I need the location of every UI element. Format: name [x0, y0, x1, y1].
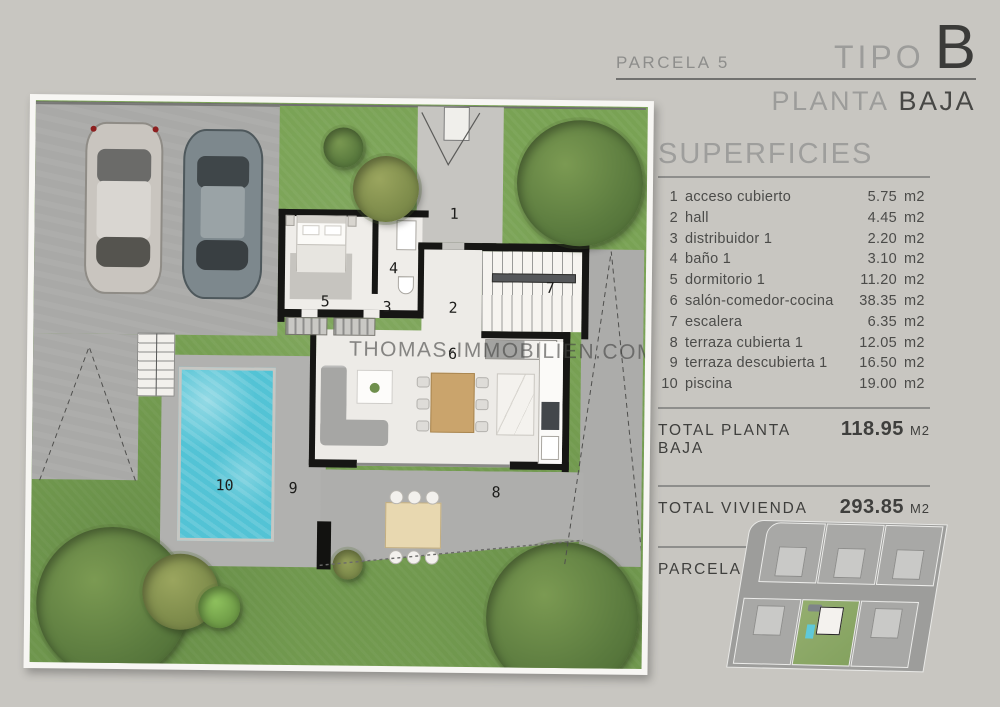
site-parcel-highlighted: [793, 600, 859, 665]
surfaces-panel: SUPERFICIES 1 acceso cubierto 5.75 m2 2 …: [658, 138, 930, 580]
wall: [581, 244, 589, 339]
floor-plan-sheet: THOMAS-IMMOBILIEN.COM 1 2 3 4 5 6 7 8 9 …: [23, 94, 653, 675]
row-unit: m2: [904, 353, 930, 374]
row-label: escalera: [685, 312, 868, 333]
row-num: 2: [658, 208, 678, 229]
table-row: 10 piscina 19.00 m2: [658, 374, 930, 395]
row-value: 2.20: [868, 229, 897, 250]
bush: [333, 549, 363, 579]
table-row: 8 terraza cubierta 1 12.05 m2: [658, 333, 930, 354]
outdoor-table: [385, 502, 442, 549]
staircase: [481, 251, 582, 332]
row-unit: m2: [904, 374, 930, 395]
row-num: 1: [658, 187, 678, 208]
room-label-6: 6: [448, 345, 457, 363]
bed: [296, 215, 347, 272]
wall: [481, 331, 570, 339]
room-label-9: 9: [288, 479, 297, 497]
outdoor-chair: [425, 491, 439, 505]
site-plan-map: [726, 520, 948, 673]
dining-chair: [416, 420, 429, 431]
nightstand: [286, 215, 295, 226]
room-label-8: 8: [491, 483, 500, 501]
row-unit: m2: [904, 208, 930, 229]
total-value: 118.95: [841, 418, 904, 441]
total-row-vivienda: TOTAL VIVIENDA 293.85 M2: [658, 485, 930, 519]
row-label: acceso cubierto: [685, 187, 868, 208]
room-label-2: 2: [448, 299, 457, 317]
wall: [417, 244, 424, 318]
header-row-top: PARCELA 5 TIPO B: [616, 22, 976, 76]
row-num: 7: [658, 312, 678, 333]
kitchen-island: [496, 373, 535, 435]
row-num: 5: [658, 270, 678, 291]
row-label: hall: [685, 208, 868, 229]
row-label: salón-comedor-cocina: [685, 291, 859, 312]
site-parcel-house: [816, 607, 845, 636]
type-group: TIPO B: [834, 22, 976, 76]
wardrobe: [333, 317, 375, 335]
outdoor-chair: [407, 550, 421, 564]
nightstand: [348, 216, 357, 227]
surfaces-title: SUPERFICIES: [658, 138, 930, 171]
header: PARCELA 5 TIPO B PLANTABAJA: [616, 22, 976, 117]
total-unit: M2: [910, 501, 930, 516]
site-parcel: [759, 523, 824, 582]
table-row: 1 acceso cubierto 5.75 m2: [658, 187, 930, 208]
row-unit: m2: [904, 187, 930, 208]
driveway-lower: [32, 333, 140, 480]
pillow: [302, 225, 319, 235]
dining-chair: [476, 377, 489, 388]
total-unit: M2: [910, 423, 930, 438]
row-num: 8: [658, 333, 678, 354]
wall: [372, 210, 379, 294]
row-num: 10: [658, 374, 678, 395]
parcela-number: PARCELA 5: [616, 53, 730, 73]
total-label: TOTAL PLANTA BAJA: [658, 422, 841, 458]
row-value: 3.10: [868, 249, 897, 270]
dining-chair: [475, 399, 488, 410]
door-opening: [301, 309, 317, 317]
entrance-gate: [443, 107, 469, 141]
door-opening: [363, 310, 379, 318]
row-label: distribuidor 1: [685, 229, 868, 250]
coffee-table: [357, 370, 393, 404]
bush: [198, 586, 240, 628]
outdoor-chair: [389, 550, 403, 564]
site-parcel-house: [892, 549, 925, 580]
pillow: [324, 225, 341, 235]
table-row: 9 terraza descubierta 1 16.50 m2: [658, 353, 930, 374]
hall-floor: [421, 244, 482, 333]
surfaces-divider: [658, 176, 930, 178]
table-row: 2 hall 4.45 m2: [658, 208, 930, 229]
property-datasheet-page: PARCELA 5 TIPO B PLANTABAJA SUPERFICIES …: [0, 0, 1000, 707]
room-label-1: 1: [450, 205, 459, 223]
row-unit: m2: [904, 291, 930, 312]
wardrobe: [285, 317, 327, 335]
table-row: 3 distribuidor 1 2.20 m2: [658, 229, 930, 250]
swimming-pool: [177, 367, 276, 542]
floor-title: PLANTABAJA: [616, 86, 976, 117]
row-label: piscina: [685, 374, 859, 395]
outdoor-chair: [407, 490, 421, 504]
total-row-planta-baja: TOTAL PLANTA BAJA 118.95 M2: [658, 407, 930, 458]
dining-chair: [475, 421, 488, 432]
outdoor-chair: [389, 490, 403, 504]
site-parcel-house: [753, 605, 786, 636]
table-row: 4 baño 1 3.10 m2: [658, 249, 930, 270]
sofa: [320, 419, 388, 446]
site-parcel: [877, 526, 942, 585]
blanket: [297, 244, 345, 273]
row-value: 38.35: [859, 291, 897, 312]
table-row: 7 escalera 6.35 m2: [658, 312, 930, 333]
cooktop: [541, 402, 559, 430]
row-label: dormitorio 1: [685, 270, 860, 291]
exterior-stairs: [137, 332, 176, 396]
row-value: 19.00: [859, 374, 897, 395]
kitchen-sink: [541, 436, 559, 460]
bathroom-sink: [396, 220, 416, 250]
floor-plan: THOMAS-IMMOBILIEN.COM 1 2 3 4 5 6 7 8 9 …: [30, 100, 648, 669]
site-parcel: [852, 602, 918, 667]
room-label-5: 5: [321, 292, 330, 310]
door-opening: [442, 243, 464, 250]
room-label-4: 4: [389, 259, 398, 277]
row-label: baño 1: [685, 249, 868, 270]
row-unit: m2: [904, 312, 930, 333]
row-value: 4.45: [868, 208, 897, 229]
site-parcel-house: [870, 608, 903, 639]
total-value: 293.85: [840, 496, 904, 519]
wall: [309, 459, 357, 468]
room-label-10: 10: [215, 476, 233, 494]
floor-label: PLANTA: [771, 86, 889, 116]
dining-chair: [416, 398, 429, 409]
type-label: TIPO: [834, 39, 925, 76]
row-num: 9: [658, 353, 678, 374]
row-label: terraza cubierta 1: [685, 333, 859, 354]
header-divider: [616, 78, 976, 80]
row-unit: m2: [904, 333, 930, 354]
row-num: 4: [658, 249, 678, 270]
row-value: 12.05: [859, 333, 897, 354]
bed-headboard: [298, 216, 346, 224]
site-parcel: [734, 599, 800, 664]
row-unit: m2: [904, 229, 930, 250]
car-silver: [82, 119, 166, 298]
room-label-7: 7: [546, 279, 555, 297]
row-value: 6.35: [868, 312, 897, 333]
mini-pool: [805, 624, 815, 638]
table-row: 5 dormitorio 1 11.20 m2: [658, 270, 930, 291]
row-unit: m2: [904, 270, 930, 291]
bush: [323, 127, 363, 167]
row-value: 16.50: [859, 353, 897, 374]
sliding-glass-door: [357, 463, 510, 468]
car-gray: [180, 126, 266, 303]
total-label: TOTAL VIVIENDA: [658, 500, 840, 518]
dining-chair: [417, 376, 430, 387]
row-value: 5.75: [868, 187, 897, 208]
floor-value: BAJA: [898, 86, 976, 116]
site-parcel: [818, 525, 883, 584]
row-num: 3: [658, 229, 678, 250]
watermark: THOMAS-IMMOBILIEN.COM: [349, 338, 648, 365]
row-num: 6: [658, 291, 678, 312]
row-value: 11.20: [860, 270, 897, 291]
room-label-3: 3: [383, 298, 392, 316]
row-label: terraza descubierta 1: [685, 353, 859, 374]
plant: [370, 383, 380, 393]
site-parcel-house: [833, 548, 866, 579]
table-row: 6 salón-comedor-cocina 38.35 m2: [658, 291, 930, 312]
outdoor-chair: [425, 551, 439, 565]
toilet: [398, 276, 414, 294]
dining-table: [430, 373, 475, 433]
wall: [277, 209, 285, 322]
wall-stub: [317, 521, 332, 569]
tree: [516, 120, 643, 247]
site-parcel-house: [774, 546, 807, 577]
row-unit: m2: [904, 249, 930, 270]
type-value: B: [935, 22, 976, 75]
stair-railing: [492, 273, 576, 283]
